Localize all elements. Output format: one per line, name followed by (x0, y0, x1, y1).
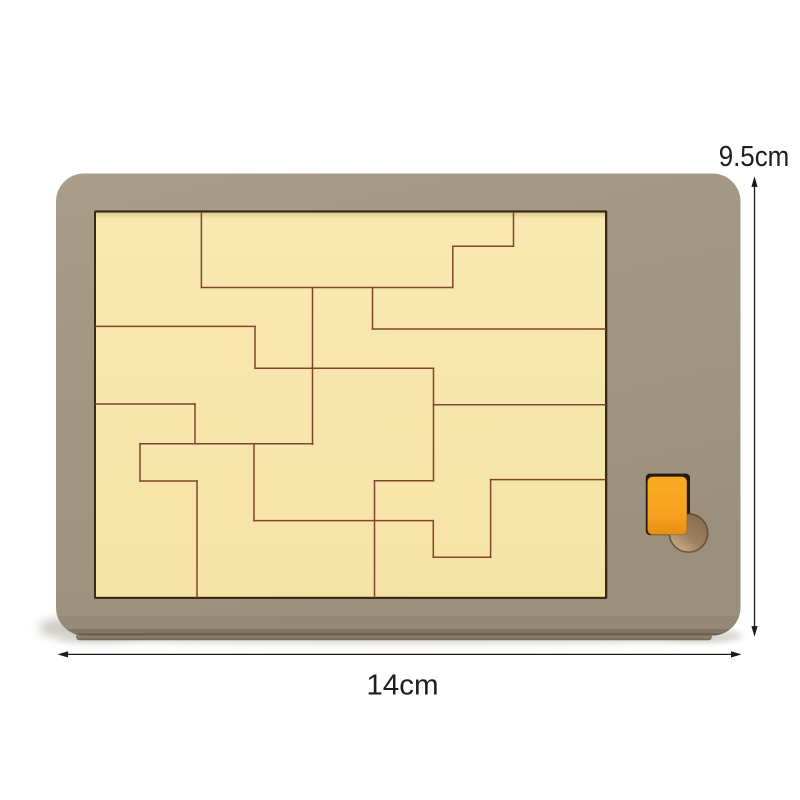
svg-text:14cm: 14cm (366, 669, 438, 701)
svg-text:9.5cm: 9.5cm (719, 141, 790, 173)
